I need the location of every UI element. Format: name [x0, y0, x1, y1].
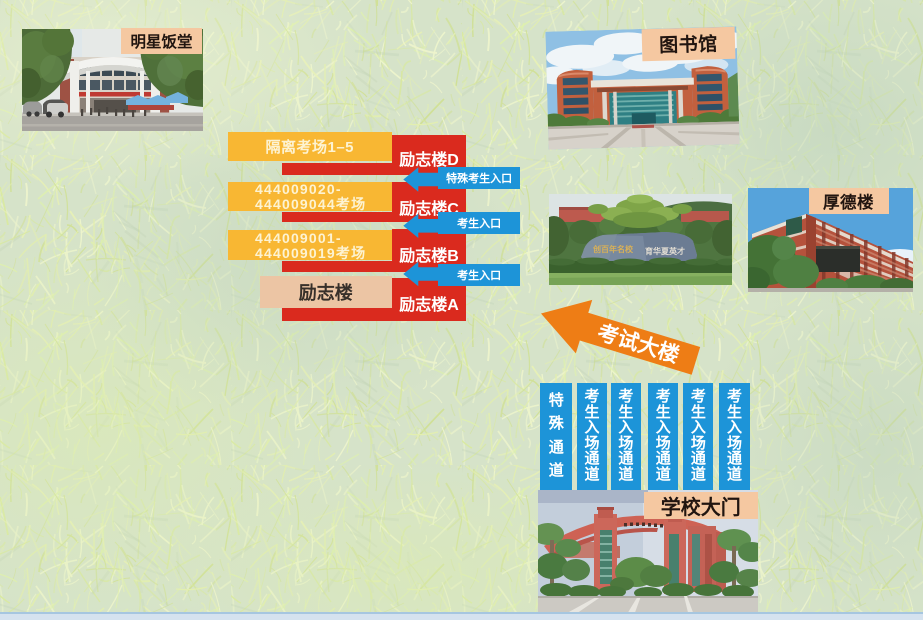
- svg-text:育华夏英才: 育华夏英才: [645, 246, 685, 256]
- svg-text:考试大楼: 考试大楼: [595, 320, 682, 368]
- svg-text:创百年名校: 创百年名校: [592, 244, 634, 254]
